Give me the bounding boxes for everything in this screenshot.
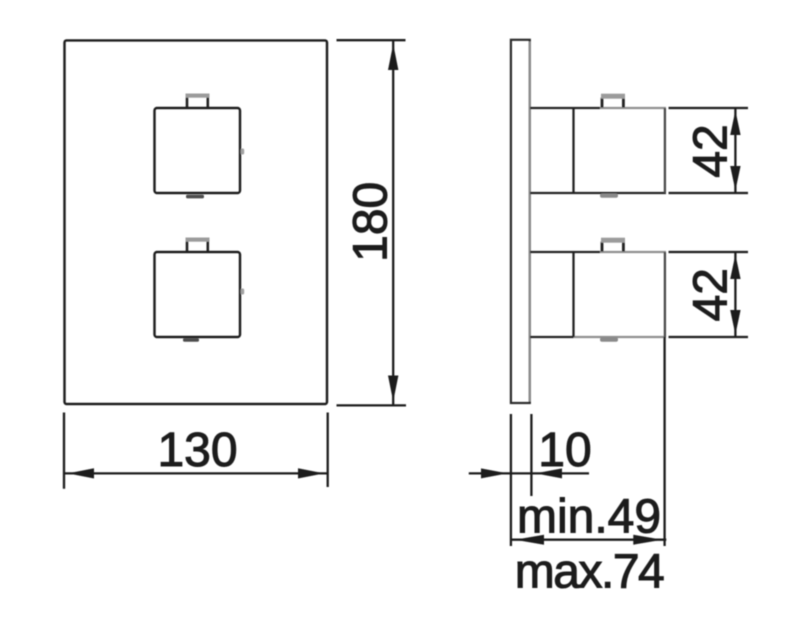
svg-text:180: 180 bbox=[345, 182, 398, 262]
svg-text:10: 10 bbox=[538, 424, 591, 477]
svg-text:42: 42 bbox=[685, 124, 738, 177]
svg-text:42: 42 bbox=[685, 268, 738, 321]
svg-text:max.74: max.74 bbox=[515, 545, 664, 598]
svg-text:130: 130 bbox=[157, 424, 237, 477]
svg-text:min.49: min.49 bbox=[517, 491, 661, 544]
